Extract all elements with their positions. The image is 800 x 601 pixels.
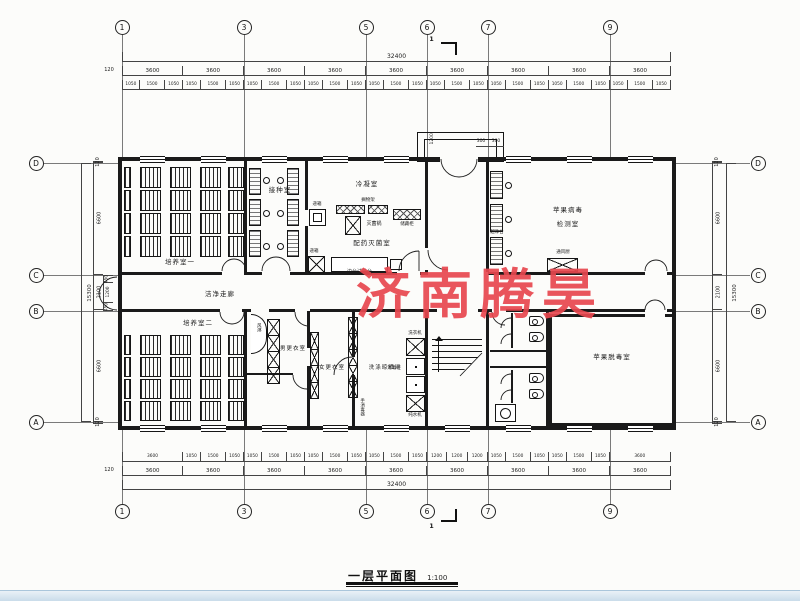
drawing-scale: 1:100: [427, 574, 447, 582]
door-arc: [645, 260, 656, 271]
equip-label-sterilizer: 灭菌锅: [361, 221, 387, 227]
title-underline-thin: [346, 586, 458, 587]
porch-dim-300a: 300: [474, 139, 488, 145]
room-label-culture2: 培养室二: [163, 319, 233, 327]
room-label-men-change: 男更衣室: [274, 346, 312, 353]
title-underline-thick: [346, 582, 458, 585]
door-arc: [655, 300, 665, 310]
door-arc: [99, 292, 117, 310]
door-arc: [276, 257, 290, 271]
grid-bubble-left-B: B: [29, 304, 44, 319]
bottom-blue-strip: [0, 590, 800, 601]
room-label-women-change: 女更衣室: [313, 365, 351, 372]
door-arc: [441, 159, 459, 177]
grid-bubble-bottom-3: 3: [237, 504, 252, 519]
grid-bubble-right-A: A: [751, 415, 766, 430]
door-arc: [501, 390, 511, 400]
floor-plan-canvas: 1200 300 300 1 1 递箱 递箱 边台试验台 风淋 培养室一 培养室…: [0, 0, 800, 600]
grid-bubble-left-D: D: [29, 156, 44, 171]
equip-label-shelf: 搁物架: [352, 198, 384, 204]
grid-bubble-right-D: D: [751, 156, 766, 171]
section-marker-bottom-h: [441, 520, 457, 522]
grid-bubble-top-6: 6: [420, 20, 435, 35]
grid-bubble-top-5: 5: [359, 20, 374, 35]
grid-bubble-bottom-1: 1: [115, 504, 130, 519]
grid-bubble-top-3: 3: [237, 20, 252, 35]
equip-label-pure-water: 纯水机: [400, 413, 430, 419]
door-arc: [232, 312, 244, 324]
door-arc: [656, 260, 667, 271]
door-arc: [459, 159, 477, 177]
room-label-inoculation: 接种室: [254, 186, 306, 194]
grid-bubble-right-B: B: [751, 304, 766, 319]
grid-bubble-top-9: 9: [603, 20, 618, 35]
pass-box-label: 递箱: [306, 202, 328, 208]
grid-bubble-bottom-6: 6: [420, 504, 435, 519]
room-label-virus-test-1: 苹果病毒: [541, 206, 595, 214]
grid-bubble-bottom-9: 9: [603, 504, 618, 519]
room-label-condensation: 冷凝室: [338, 180, 396, 188]
equip-label-hand-sanitizer: 手消毒器: [359, 392, 365, 422]
equip-label-washer: 洗衣机: [400, 331, 430, 337]
pass-box2-label: 递箱: [303, 249, 325, 255]
watermark: 济南腾昊: [356, 250, 604, 329]
room-label-virus-test-2: 检测室: [541, 220, 595, 228]
grid-bubble-left-C: C: [29, 268, 44, 283]
grid-bubble-top-7: 7: [481, 20, 496, 35]
door-arc: [262, 257, 276, 271]
porch-dim-300b: 300: [489, 139, 503, 145]
grid-bubble-left-A: A: [29, 415, 44, 430]
porch-dim-1200: 1200: [430, 130, 436, 148]
grid-bubble-bottom-5: 5: [359, 504, 374, 519]
section-marker-top-v: [455, 42, 457, 55]
door-arc: [222, 259, 234, 271]
equip-label-disinfect: 消毒柜: [383, 366, 405, 372]
grid-bubble-bottom-7: 7: [481, 504, 496, 519]
door-arc: [293, 375, 307, 389]
section-label-top: 1: [426, 35, 438, 43]
door-arc: [501, 374, 511, 384]
room-label-culture1: 培养室一: [145, 258, 215, 266]
room-label-detox: 苹果脱毒室: [583, 353, 641, 361]
room-label-prep-steril: 配药灭菌室: [338, 239, 406, 247]
section-label-bottom: 1: [426, 522, 438, 530]
grid-bubble-right-C: C: [751, 268, 766, 283]
equip-label-clean-bench: 超净台: [486, 230, 508, 236]
door-arc: [234, 259, 246, 271]
room-label-corridor: 洁净走廊: [190, 290, 250, 298]
dim-offset-top: 120: [99, 67, 119, 73]
equip-label-storage: 储藏柜: [393, 222, 421, 228]
dim-offset-bottom: 120: [99, 467, 119, 473]
door-arc: [501, 334, 511, 344]
door-arc: [99, 277, 117, 295]
door-arc: [295, 312, 309, 326]
door-arc: [460, 353, 482, 376]
door-arc: [645, 300, 655, 310]
grid-bubble-top-1: 1: [115, 20, 130, 35]
